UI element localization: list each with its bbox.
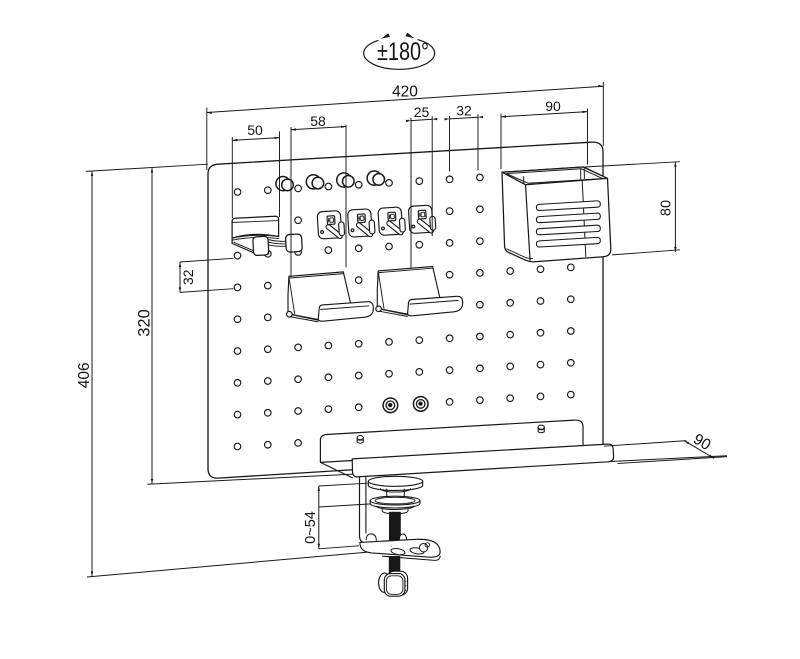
svg-text:80: 80	[659, 200, 675, 216]
svg-text:320: 320	[136, 309, 154, 337]
svg-text:58: 58	[310, 113, 326, 129]
svg-text:50: 50	[247, 122, 263, 138]
svg-text:25: 25	[414, 104, 430, 120]
svg-text:420: 420	[392, 84, 418, 101]
svg-text:32: 32	[180, 269, 196, 285]
svg-text:0~54: 0~54	[303, 511, 319, 544]
svg-text:32: 32	[456, 102, 472, 118]
svg-text:±180°: ±180°	[377, 38, 429, 66]
svg-text:406: 406	[76, 362, 93, 388]
svg-text:90: 90	[545, 98, 561, 114]
